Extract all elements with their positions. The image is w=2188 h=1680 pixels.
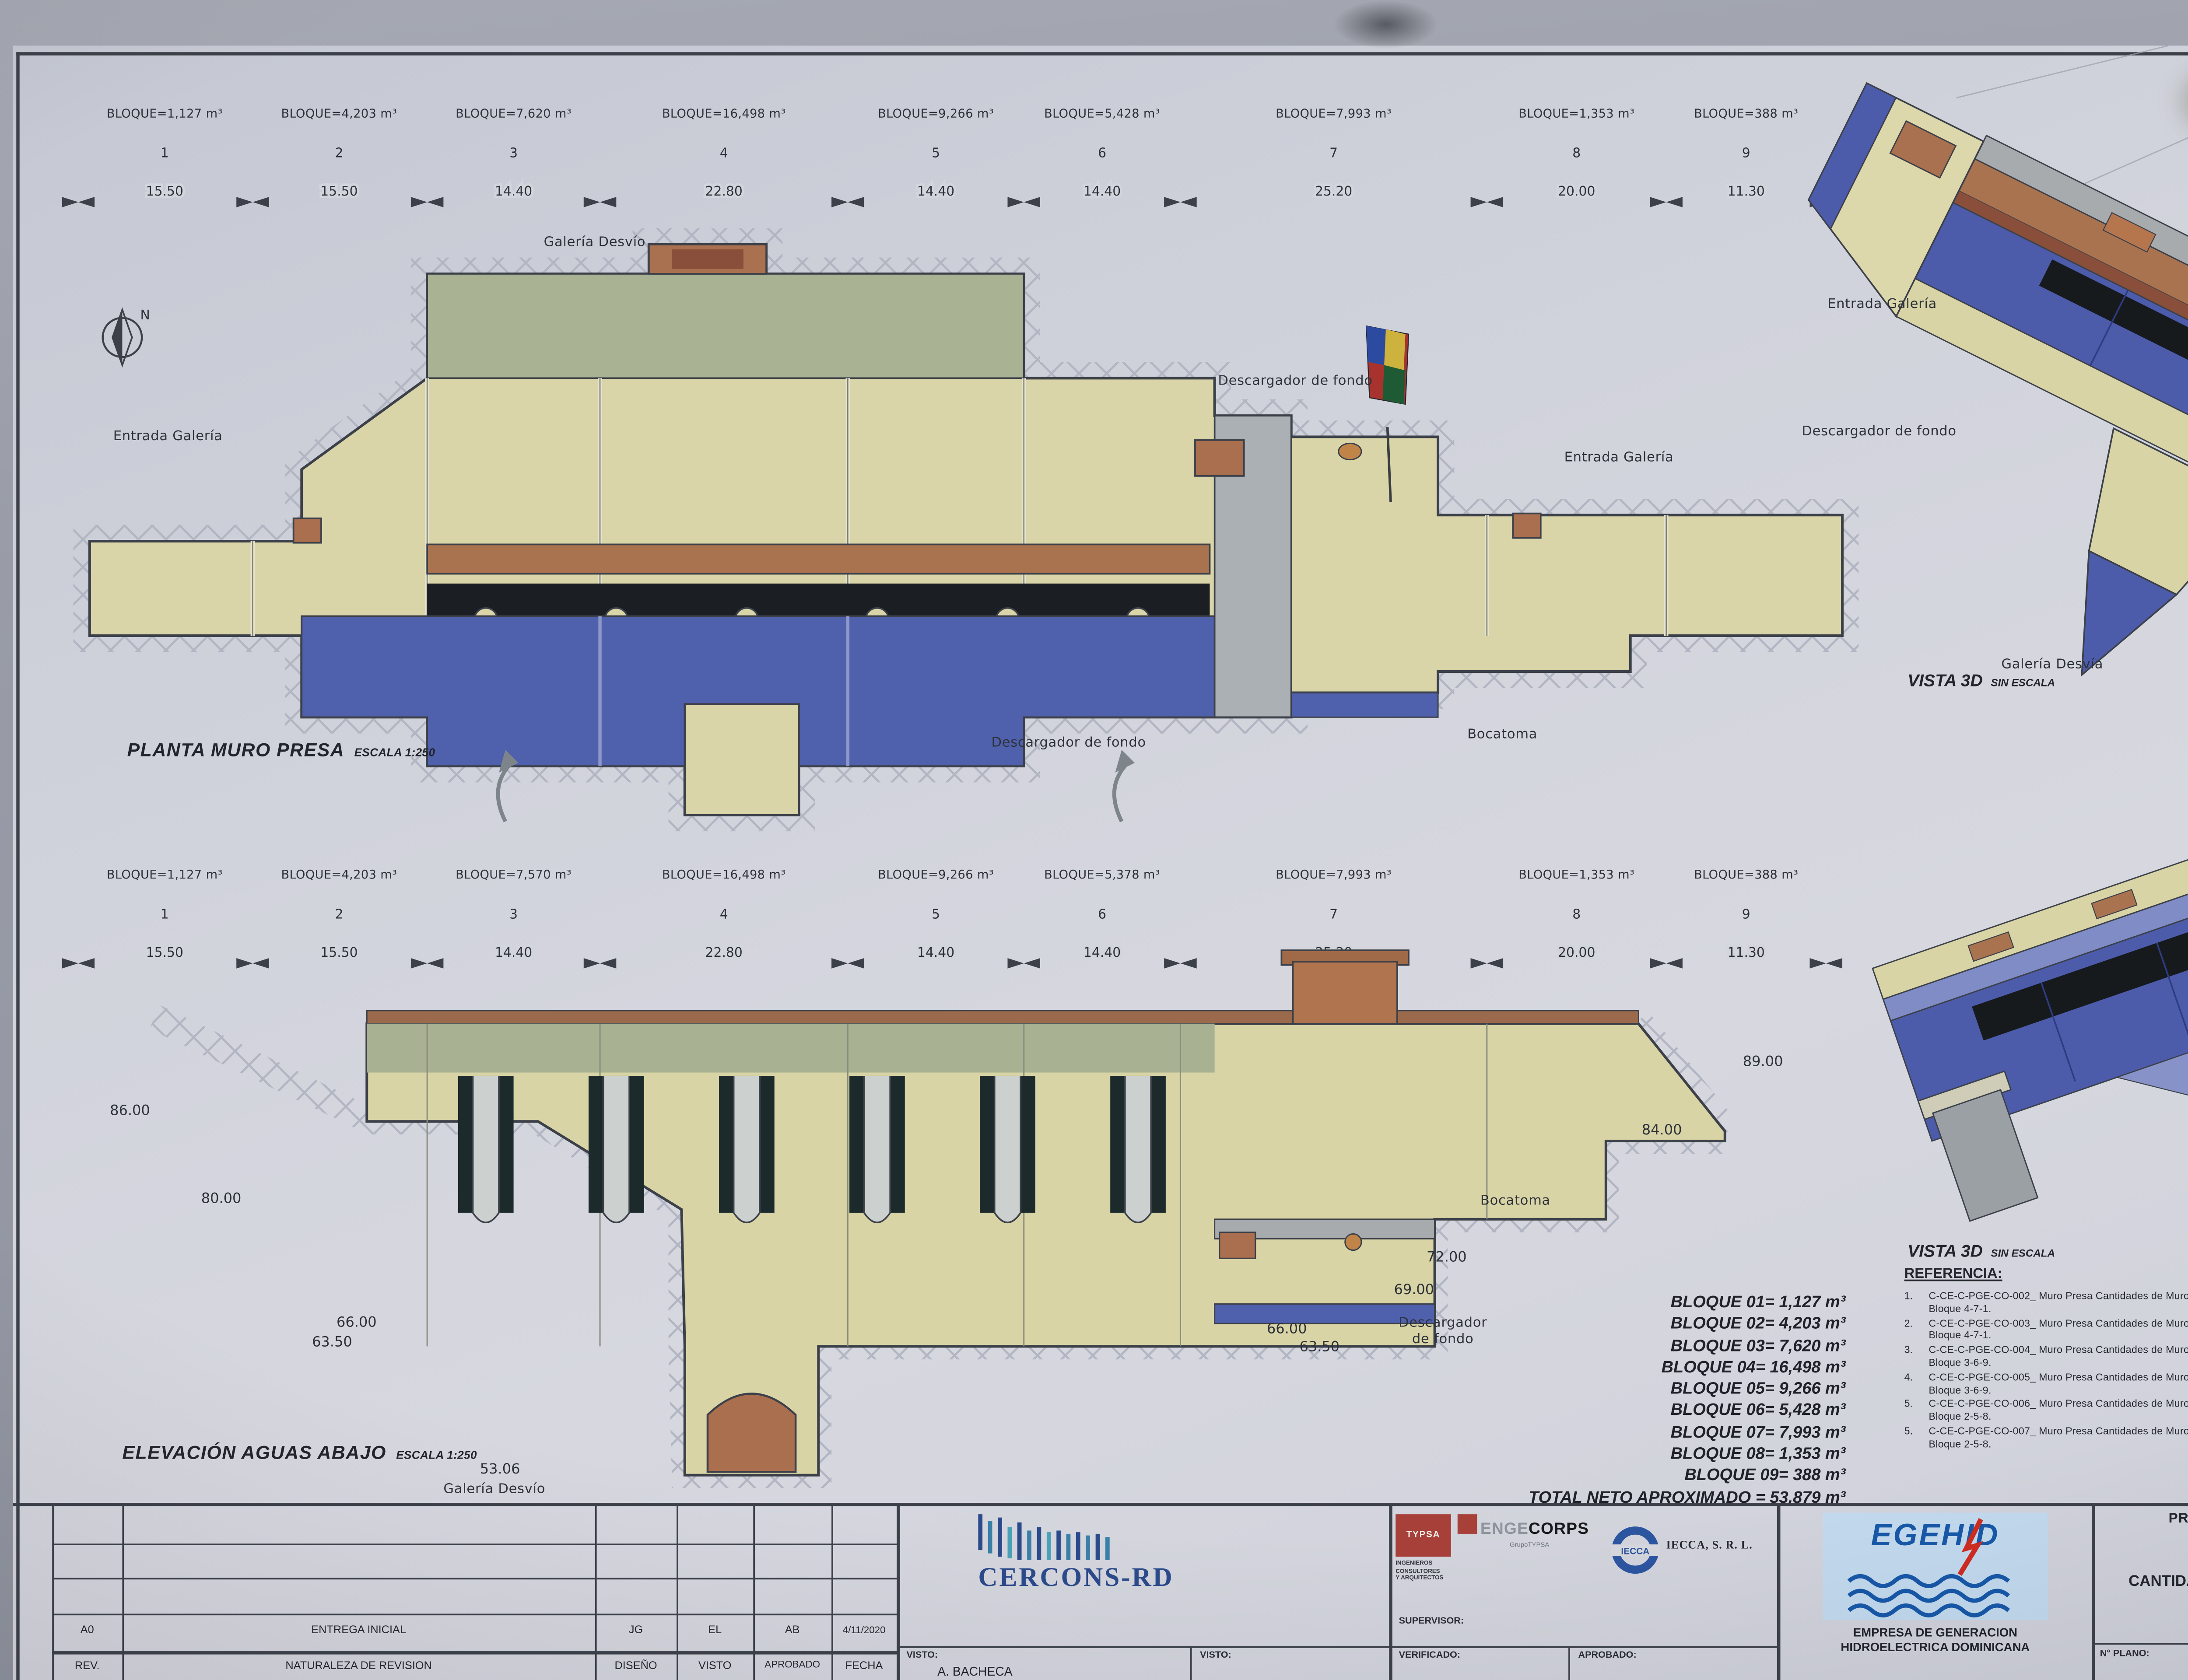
referencia-item-number: 5. <box>1904 1426 1929 1452</box>
sheet-title-3: VISTAS 3D <box>2095 1601 2188 1619</box>
dimension: 14.40 <box>1083 945 1121 960</box>
vista1-subcaption: SIN ESCALA <box>1991 678 2055 689</box>
block-volume: BLOQUE=1,127 m³ <box>107 107 223 120</box>
plan-view-drawing: N <box>49 245 1859 822</box>
axis-number: 9 <box>1742 906 1750 922</box>
block-volume: BLOQUE=7,993 m³ <box>1276 107 1392 120</box>
egehid-company: EMPRESA DE GENERACION HIDROELECTRICA DOM… <box>1780 1625 2090 1656</box>
v3d1-label-entrada-left: Entrada Galería <box>1769 295 1937 311</box>
north-letter: N <box>140 308 150 323</box>
referencia-item-code: C-CE-C-PGE-CO-002_ <box>1929 1291 2036 1302</box>
verificado-label: VERIFICADO: <box>1399 1651 1460 1661</box>
revision-aprobado-header: APROBADO <box>753 1661 831 1670</box>
dimension: 11.30 <box>1728 945 1765 960</box>
sheet-title-1: PRESA <box>2095 1542 2188 1562</box>
revision-rev-header: REV. <box>52 1661 122 1672</box>
block-volume: BLOQUE=9,266 m³ <box>878 107 994 120</box>
typsa-sub3: Y ARQUITECTOS <box>1396 1575 1461 1582</box>
blueprint-photo: BLOQUE=1,127 m³ BLOQUE=4,203 m³ BLOQUE=7… <box>0 0 2188 1680</box>
dimension: 11.30 <box>1728 184 1765 199</box>
axis-number: 1 <box>161 146 169 161</box>
dimension: 15.50 <box>320 945 358 960</box>
elev-level: 66.00 <box>305 1316 377 1332</box>
bloque-total-row: BLOQUE 09= 388 m³ <box>1467 1466 1845 1488</box>
axis-number: 7 <box>1329 906 1338 922</box>
referencia-item-number: 2. <box>1904 1318 1929 1344</box>
revision-rev-value: A0 <box>52 1625 122 1637</box>
elev-label-galeria-desvio: Galería Desvío <box>443 1480 545 1496</box>
block-volume: BLOQUE=388 m³ <box>1694 868 1798 882</box>
axis-number: 1 <box>161 906 169 922</box>
referencia-item-code: C-CE-C-PGE-CO-006_ <box>1929 1399 2036 1410</box>
revision-desc-value: ENTREGA INICIAL <box>122 1625 595 1637</box>
plan-label-descargador-top: Descargador de fondo <box>1161 371 1430 388</box>
plan-label-entrada-galeria-right: Entrada Galería <box>1529 448 1709 465</box>
titleblock-divider <box>13 1503 2188 1507</box>
referencia-item-number: 1. <box>1904 1291 1929 1316</box>
axes-row-top: BLOQUE=1,127 m³ BLOQUE=4,203 m³ BLOQUE=7… <box>62 107 1842 231</box>
referencia-item: 5. C-CE-C-PGE-CO-007_ Muro Presa Cantida… <box>1904 1426 2188 1452</box>
bloque-totals-list: BLOQUE 01= 1,127 m³BLOQUE 02= 4,203 m³BL… <box>1467 1292 1845 1487</box>
dimension: 20.00 <box>1558 184 1595 199</box>
elev-label-bocatoma: Bocatoma <box>1480 1191 1550 1207</box>
block-volume: BLOQUE=9,266 m³ <box>878 868 994 882</box>
elevation-scale: ESCALA 1:250 <box>396 1451 477 1462</box>
engecorps-name1: ENGE <box>1480 1521 1529 1539</box>
revision-fecha-value: 4/11/2020 <box>831 1627 897 1636</box>
dimension: 14.40 <box>495 184 532 199</box>
drawing-art: BLOQUE=1,127 m³ BLOQUE=4,203 m³ BLOQUE=7… <box>0 0 2188 1680</box>
block-volume: BLOQUE=1,353 m³ <box>1518 107 1634 120</box>
dimension: 22.80 <box>705 945 743 960</box>
referencia-item: 4. C-CE-C-PGE-CO-005_ Muro Presa Cantida… <box>1904 1372 2188 1397</box>
dimension: 14.40 <box>917 184 954 199</box>
axis-number: 4 <box>720 146 728 161</box>
referencia-item: 5. C-CE-C-PGE-CO-006_ Muro Presa Cantida… <box>1904 1399 2188 1424</box>
vista2-subcaption: SIN ESCALA <box>1991 1249 2055 1260</box>
elev-level: 89.00 <box>1743 1055 1783 1071</box>
block-volume: BLOQUE=4,203 m³ <box>281 107 397 120</box>
cercons-logo <box>975 1511 1125 1563</box>
engecorps-sub: GrupoTYPSA <box>1510 1540 1549 1549</box>
elev-level: 84.00 <box>1642 1123 1682 1139</box>
revision-diseno-header: DISEÑO <box>595 1661 677 1672</box>
typsa-logo: TYPSA <box>1396 1514 1451 1557</box>
bloque-total-row: BLOQUE 06= 5,428 m³ <box>1467 1401 1845 1423</box>
revision-aprobado-value: AB <box>753 1625 831 1637</box>
visto2-label: VISTO: <box>1200 1651 1231 1661</box>
v3d1-label-descargador: Descargador de fondo <box>1728 422 1957 438</box>
project-title: PROYECTO PRESA DE GUAYUBIN <box>2095 1509 2188 1526</box>
revision-desc-header: NATURALEZA DE REVISION <box>122 1661 595 1672</box>
vista2-caption: VISTA 3DSIN ESCALA <box>1907 1242 2055 1262</box>
bloque-total-row: BLOQUE 07= 7,993 m³ <box>1467 1423 1845 1445</box>
referencia-item: 1. C-CE-C-PGE-CO-002_ Muro Presa Cantida… <box>1904 1291 2188 1316</box>
iecca-name: IECCA, S. R. L. <box>1666 1539 1753 1552</box>
iecca-circle-text: IECCA <box>1621 1546 1649 1556</box>
plan-label-bocatoma: Bocatoma <box>1467 725 1537 742</box>
typsa-sub2: CONSULTORES <box>1396 1567 1461 1575</box>
engecorps-name: ENGECORPS <box>1480 1521 1589 1539</box>
revision-visto-value: EL <box>677 1625 753 1637</box>
plan-label-descargador-bottom: Descargador de fondo <box>959 734 1179 750</box>
supervisor-label: SUPERVISOR: <box>1399 1617 1464 1627</box>
axis-number: 6 <box>1098 146 1106 161</box>
referencia-item-text: C-CE-C-PGE-CO-005_ Muro Presa Cantidades… <box>1929 1372 2188 1397</box>
dimension: 15.50 <box>146 184 183 199</box>
egehid-company-line2: HIDROELECTRICA DOMINICANA <box>1780 1641 2090 1656</box>
referencia-block: REFERENCIA: 1. C-CE-C-PGE-CO-002_ Muro P… <box>1904 1265 2188 1453</box>
axis-number: 7 <box>1329 146 1338 161</box>
referencia-item-text: C-CE-C-PGE-CO-006_ Muro Presa Cantidades… <box>1929 1399 2188 1424</box>
grid-line <box>897 1646 1777 1648</box>
dimension: 22.80 <box>705 184 743 199</box>
axis-number: 3 <box>509 146 518 161</box>
axis-number: 8 <box>1572 146 1581 161</box>
revision-diseno-value: JG <box>595 1625 677 1637</box>
block-volume: BLOQUE=7,570 m³ <box>456 868 572 882</box>
vista-3d-2-drawing <box>1852 666 2188 1225</box>
block-volume: BLOQUE=1,127 m³ <box>107 868 223 882</box>
grid-line <box>1777 1503 1780 1680</box>
referencia-item-text: C-CE-C-PGE-CO-004_ Muro Presa Cantidades… <box>1929 1345 2188 1370</box>
grid-line <box>2092 1643 2188 1645</box>
plan-title: PLANTA MURO PRESAESCALA 1:250 <box>127 742 435 761</box>
bloque-total-row: BLOQUE 05= 9,266 m³ <box>1467 1379 1845 1401</box>
referencia-item-code: C-CE-C-PGE-CO-004_ <box>1929 1345 2036 1356</box>
grid-line <box>897 1503 899 1680</box>
lightning-bolt-icon <box>1960 1519 1981 1575</box>
axis-number: 2 <box>335 146 343 161</box>
grid-line <box>1568 1646 1571 1680</box>
elev-level: 72.00 <box>1427 1250 1467 1267</box>
grid-line <box>2092 1503 2094 1680</box>
axis-number: 5 <box>932 906 940 922</box>
axis-number: 8 <box>1572 906 1581 922</box>
aprobado-label: APROBADO: <box>1578 1651 1636 1661</box>
dimension: 15.50 <box>320 184 358 199</box>
visto1-label: VISTO: <box>906 1651 938 1661</box>
axis-number: 2 <box>335 906 343 922</box>
plan-label-galeria-desvio: Galería Desvío <box>456 233 645 249</box>
bloque-total-row: BLOQUE 03= 7,620 m³ <box>1467 1336 1845 1358</box>
elev-level: 86.00 <box>78 1103 150 1120</box>
referencia-item-text: C-CE-C-PGE-CO-002_ Muro Presa Cantidades… <box>1929 1291 2188 1316</box>
egehid-logo-art <box>1823 1512 2048 1620</box>
plan-label-entrada-galeria-left: Entrada Galería <box>78 427 258 443</box>
vista1-caption: VISTA 3DSIN ESCALA <box>1907 672 2055 691</box>
referencia-item-code: C-CE-C-PGE-CO-003_ <box>1929 1318 2036 1330</box>
sheet-title-2: CANTIDADES DE HORMIGÓN DE BLOQUES <box>2095 1571 2188 1589</box>
plan-scale: ESCALA 1:250 <box>354 748 435 759</box>
grid-line <box>52 1578 897 1579</box>
block-volume: BLOQUE=16,498 m³ <box>662 868 786 882</box>
referencia-heading: REFERENCIA: <box>1904 1265 2188 1281</box>
bloque-total-row: BLOQUE 08= 1,353 m³ <box>1467 1444 1845 1466</box>
egehid-logo: EGEHID <box>1823 1512 2048 1620</box>
grid-line <box>1389 1503 1392 1680</box>
vista2-caption-text: VISTA 3D <box>1907 1242 1983 1262</box>
block-volume: BLOQUE=5,378 m³ <box>1044 868 1160 882</box>
block-volume: BLOQUE=5,428 m³ <box>1044 107 1160 120</box>
dimension: 14.40 <box>495 945 532 960</box>
grid-line <box>1190 1646 1192 1680</box>
dimension: 15.50 <box>146 945 183 960</box>
elev-label-descargador-l2: de fondo <box>1412 1330 1474 1346</box>
axis-number: 9 <box>1742 146 1750 161</box>
typsa-sub: INGENIEROS CONSULTORES Y ARQUITECTOS <box>1396 1560 1461 1582</box>
egehid-company-line1: EMPRESA DE GENERACION <box>1780 1625 2090 1641</box>
block-volume: BLOQUE=4,203 m³ <box>281 868 397 882</box>
referencia-item-number: 5. <box>1904 1399 1929 1424</box>
dimension: 20.00 <box>1558 945 1595 960</box>
elev-level: 69.00 <box>1394 1283 1434 1299</box>
elev-level: 63.50 <box>281 1335 352 1351</box>
revision-visto-header: VISTO <box>677 1661 753 1672</box>
bloque-total-row: BLOQUE 01= 1,127 m³ <box>1467 1292 1845 1314</box>
elev-level: 66.00 <box>1267 1322 1307 1338</box>
bloque-total-row: BLOQUE 02= 4,203 m³ <box>1467 1314 1845 1336</box>
referencia-item-text: C-CE-C-PGE-CO-007_ Muro Presa Cantidades… <box>1929 1426 2188 1452</box>
grid-line <box>52 1543 897 1545</box>
block-volume: BLOQUE=7,993 m³ <box>1276 868 1392 882</box>
water-waves-icon <box>1849 1576 2009 1615</box>
plano-number: C-CE-C-PGE-CO-001 <box>2119 1655 2188 1673</box>
vista1-caption-text: VISTA 3D <box>1907 672 1983 691</box>
referencia-item: 3. C-CE-C-PGE-CO-004_ Muro Presa Cantida… <box>1904 1345 2188 1370</box>
elev-level: 80.00 <box>169 1191 241 1207</box>
dimension: 14.40 <box>1083 184 1121 199</box>
revision-fecha-header: FECHA <box>831 1661 897 1672</box>
axis-number: 4 <box>720 906 728 922</box>
iecca-logo: IECCA <box>1611 1522 1660 1578</box>
north-arrow-icon: N <box>103 308 150 365</box>
elevation-title-text: ELEVACIÓN AGUAS ABAJO <box>122 1444 386 1464</box>
dimension: 14.40 <box>917 945 954 960</box>
referencia-list: 1. C-CE-C-PGE-CO-002_ Muro Presa Cantida… <box>1904 1291 2188 1452</box>
v3d1-label-galeria: Galería Desvía <box>1948 655 2103 672</box>
cercons-name: CERCONS-RD <box>913 1561 1239 1594</box>
referencia-item-code: C-CE-C-PGE-CO-007_ <box>1929 1426 2036 1438</box>
bloque-total-row: BLOQUE 04= 16,498 m³ <box>1467 1358 1845 1379</box>
block-volume: BLOQUE=1,353 m³ <box>1518 868 1634 882</box>
plan-title-text: PLANTA MURO PRESA <box>127 742 345 761</box>
engecorps-square-icon <box>1458 1514 1477 1534</box>
block-volume: BLOQUE=7,620 m³ <box>456 107 572 120</box>
elev-level: 63.50 <box>1299 1340 1339 1356</box>
axis-number: 3 <box>509 906 518 922</box>
referencia-item-number: 3. <box>1904 1345 1929 1370</box>
visto1-value: A. BACHECA <box>937 1664 1012 1679</box>
referencia-item: 2. C-CE-C-PGE-CO-003_ Muro Presa Cantida… <box>1904 1318 2188 1344</box>
dimension: 25.20 <box>1315 184 1352 199</box>
typsa-sub1: INGENIEROS <box>1396 1560 1461 1567</box>
vista-3d-1-drawing: BLOQUE=1,353 m³ 8 BLOQUE=388 m³ <box>1673 45 2188 907</box>
design-space: BLOQUE=1,127 m³ BLOQUE=4,203 m³ BLOQUE=7… <box>0 0 2188 1680</box>
engecorps-name2: CORPS <box>1529 1521 1589 1539</box>
block-volume: BLOQUE=388 m³ <box>1694 107 1798 120</box>
grid-line <box>52 1651 897 1654</box>
axes-row-bottom: BLOQUE=1,127 m³ BLOQUE=4,203 m³ BLOQUE=7… <box>62 868 1842 993</box>
block-volume: BLOQUE=16,498 m³ <box>662 107 786 120</box>
axis-number: 6 <box>1098 906 1106 922</box>
elevation-title: ELEVACIÓN AGUAS ABAJOESCALA 1:250 <box>122 1444 477 1464</box>
grid-line <box>52 1613 897 1616</box>
elev-level: 53.06 <box>449 1462 520 1478</box>
referencia-item-code: C-CE-C-PGE-CO-005_ <box>1929 1372 2036 1383</box>
referencia-item-number: 4. <box>1904 1372 1929 1397</box>
axis-number: 5 <box>932 146 940 161</box>
referencia-item-text: C-CE-C-PGE-CO-003_ Muro Presa Cantidades… <box>1929 1318 2188 1344</box>
